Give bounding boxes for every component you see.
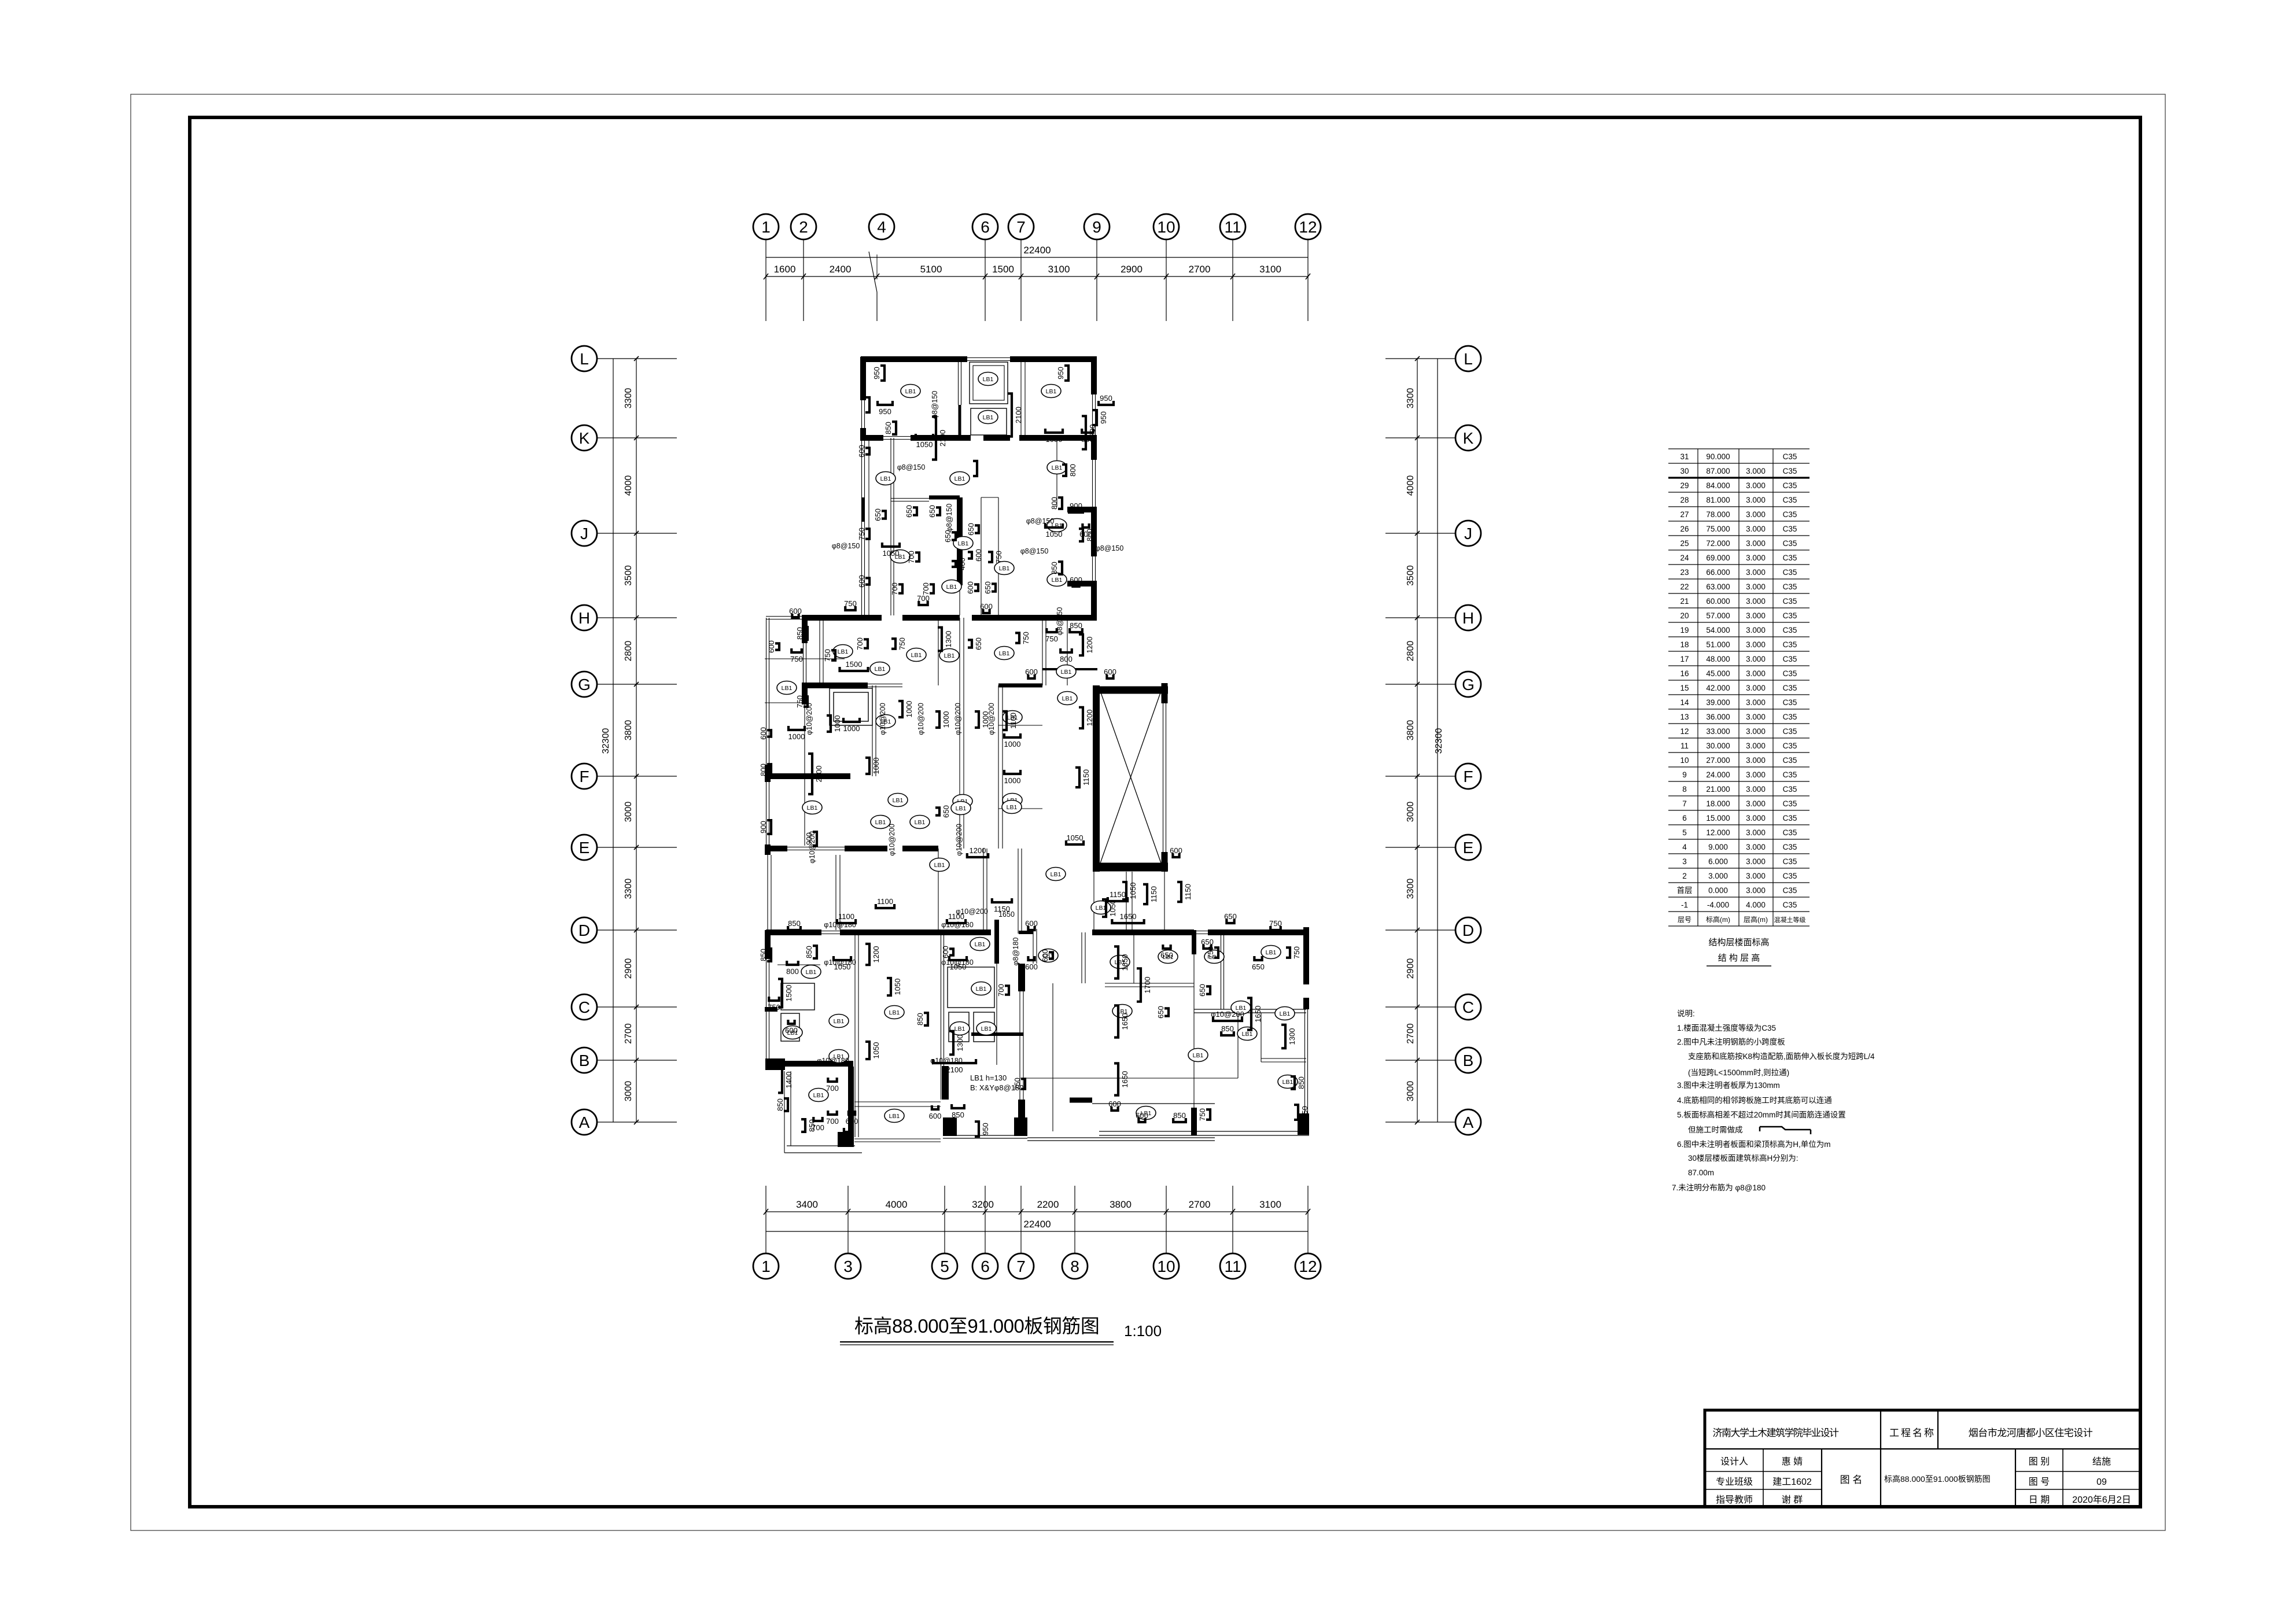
svg-text:1200: 1200 [970, 846, 986, 855]
svg-text:层高(m): 层高(m) [1744, 915, 1768, 924]
svg-text:9.000: 9.000 [1708, 843, 1728, 851]
svg-text:C35: C35 [1783, 597, 1797, 606]
svg-text:850: 850 [1050, 562, 1059, 574]
svg-text:3.000: 3.000 [1746, 843, 1766, 851]
svg-text:D: D [578, 921, 590, 939]
svg-text:800: 800 [1068, 464, 1077, 477]
svg-text:3300: 3300 [624, 388, 633, 409]
svg-text:28: 28 [1680, 496, 1689, 504]
svg-text:3.000: 3.000 [1746, 510, 1766, 519]
svg-text:1050: 1050 [916, 440, 933, 449]
svg-text:φ8@150: φ8@150 [931, 391, 939, 419]
svg-text:600: 600 [1070, 576, 1082, 584]
svg-text:900: 900 [759, 821, 768, 833]
svg-text:4000: 4000 [624, 475, 633, 496]
svg-text:3300: 3300 [624, 879, 633, 899]
svg-text:700: 700 [826, 1084, 839, 1093]
svg-text:C35: C35 [1783, 886, 1797, 895]
svg-text:1000: 1000 [833, 715, 842, 732]
svg-text:1300: 1300 [956, 1035, 964, 1052]
svg-text:LB1: LB1 [889, 1009, 900, 1016]
svg-text:LB1: LB1 [1046, 388, 1057, 395]
svg-text:2020年6月2日: 2020年6月2日 [2072, 1495, 2131, 1505]
svg-text:LB1: LB1 [806, 969, 817, 976]
svg-text:φ10@200: φ10@200 [1211, 1010, 1244, 1019]
svg-text:11: 11 [1224, 218, 1241, 236]
svg-text:12: 12 [1299, 1257, 1317, 1275]
svg-text:0.000: 0.000 [1708, 886, 1728, 895]
svg-text:600: 600 [980, 602, 993, 611]
svg-text:30楼层楼板面建筑标高H分别为:: 30楼层楼板面建筑标高H分别为: [1688, 1153, 1799, 1163]
svg-text:3800: 3800 [1110, 1199, 1132, 1210]
svg-text:750: 750 [1292, 946, 1301, 959]
svg-text:3200: 3200 [972, 1199, 994, 1210]
svg-text:950: 950 [1100, 394, 1112, 403]
svg-text:层号: 层号 [1678, 916, 1691, 924]
svg-text:650: 650 [1252, 962, 1265, 971]
svg-text:1000: 1000 [905, 701, 913, 718]
svg-text:C35: C35 [1783, 539, 1797, 548]
svg-text:6: 6 [981, 1257, 990, 1275]
svg-text:LB1: LB1 [956, 805, 967, 812]
svg-text:结 构 层 高: 结 构 层 高 [1718, 953, 1760, 963]
svg-text:F: F [1463, 768, 1473, 785]
svg-text:C35: C35 [1783, 640, 1797, 649]
svg-text:LB1: LB1 [813, 1092, 824, 1099]
svg-text:850: 850 [776, 1098, 784, 1111]
svg-text:C35: C35 [1783, 770, 1797, 779]
svg-text:9: 9 [1682, 770, 1687, 779]
svg-text:3.000: 3.000 [1746, 872, 1766, 880]
svg-text:850: 850 [805, 946, 813, 958]
svg-text:烟台市龙河唐都小区住宅设计: 烟台市龙河唐都小区住宅设计 [1969, 1427, 2093, 1438]
svg-text:LB1: LB1 [1242, 1031, 1253, 1038]
svg-text:C35: C35 [1783, 669, 1797, 678]
svg-text:54.000: 54.000 [1706, 626, 1730, 635]
svg-text:11: 11 [1680, 742, 1689, 750]
svg-text:5100: 5100 [920, 264, 942, 275]
svg-text:69.000: 69.000 [1706, 554, 1730, 562]
svg-text:LB1: LB1 [944, 652, 955, 659]
svg-text:LB1: LB1 [1282, 1079, 1293, 1086]
svg-text:D: D [1462, 921, 1474, 939]
svg-text:C35: C35 [1783, 582, 1797, 591]
svg-text:φ10@180: φ10@180 [824, 958, 856, 967]
svg-text:1200: 1200 [1085, 637, 1094, 654]
svg-text:27.000: 27.000 [1706, 756, 1730, 765]
svg-text:3: 3 [1682, 857, 1687, 866]
svg-text:51.000: 51.000 [1706, 640, 1730, 649]
svg-text:2100: 2100 [938, 430, 947, 447]
svg-text:31: 31 [1680, 452, 1689, 461]
svg-text:600: 600 [974, 549, 983, 562]
svg-text:C35: C35 [1783, 785, 1797, 794]
svg-text:LB1: LB1 [911, 652, 922, 659]
svg-text:1150: 1150 [1149, 886, 1158, 902]
svg-text:C35: C35 [1783, 554, 1797, 562]
svg-text:1150: 1150 [1082, 769, 1090, 785]
svg-text:1050: 1050 [883, 549, 900, 558]
svg-text:2100: 2100 [1014, 407, 1023, 423]
svg-text:1100: 1100 [877, 897, 893, 906]
svg-text:6: 6 [1682, 814, 1687, 822]
svg-text:但施工时需做成: 但施工时需做成 [1688, 1126, 1743, 1134]
svg-text:LB1: LB1 [838, 648, 849, 655]
svg-text:3.000: 3.000 [1746, 756, 1766, 765]
svg-text:650: 650 [1160, 951, 1173, 960]
svg-text:4: 4 [877, 218, 886, 236]
svg-text:81.000: 81.000 [1706, 496, 1730, 504]
svg-text:950: 950 [1099, 411, 1108, 424]
svg-text:LB1: LB1 [875, 666, 886, 673]
svg-text:φ10@200: φ10@200 [955, 824, 963, 856]
svg-text:800: 800 [786, 967, 799, 976]
svg-text:LB1: LB1 [875, 819, 886, 826]
svg-text:850: 850 [884, 422, 893, 434]
svg-text:C35: C35 [1783, 611, 1797, 620]
svg-text:600: 600 [846, 1117, 858, 1126]
svg-text:32300: 32300 [601, 728, 611, 754]
svg-text:1100: 1100 [1009, 713, 1018, 729]
svg-text:1050: 1050 [893, 979, 902, 995]
svg-text:2: 2 [1682, 872, 1687, 880]
svg-text:12: 12 [1680, 727, 1689, 736]
svg-text:φ10@200: φ10@200 [879, 703, 887, 735]
svg-text:600: 600 [767, 640, 776, 653]
svg-text:950: 950 [872, 367, 881, 379]
svg-text:C35: C35 [1783, 828, 1797, 837]
svg-text:C35: C35 [1783, 713, 1797, 721]
svg-text:LB1: LB1 [1096, 905, 1107, 912]
svg-text:1400: 1400 [784, 1072, 793, 1089]
svg-text:φ8@150: φ8@150 [897, 463, 926, 471]
svg-text:H: H [578, 609, 590, 627]
svg-text:700: 700 [997, 984, 1005, 997]
svg-text:LB1: LB1 [782, 685, 793, 692]
svg-text:1200: 1200 [872, 946, 880, 963]
svg-text:1: 1 [761, 218, 771, 236]
svg-text:(当短跨L<1500mm时,则拉通): (当短跨L<1500mm时,则拉通) [1688, 1068, 1789, 1077]
svg-text:650: 650 [967, 523, 975, 536]
svg-text:600: 600 [759, 727, 768, 740]
svg-text:700: 700 [922, 582, 930, 595]
svg-text:φ10@200: φ10@200 [954, 703, 962, 735]
svg-text:图 别: 图 别 [2029, 1456, 2050, 1467]
svg-text:3.000: 3.000 [1746, 698, 1766, 707]
svg-text:1500: 1500 [784, 985, 793, 1002]
svg-text:C35: C35 [1783, 684, 1797, 692]
svg-text:φ8@150: φ8@150 [1056, 607, 1064, 636]
svg-text:21: 21 [1680, 597, 1689, 606]
svg-text:750: 750 [1013, 1078, 1022, 1090]
svg-text:1200: 1200 [1085, 710, 1094, 726]
svg-text:15: 15 [1680, 684, 1689, 692]
svg-text:850: 850 [952, 1111, 964, 1119]
svg-text:3.000: 3.000 [1746, 496, 1766, 504]
svg-text:LB1: LB1 [958, 540, 969, 547]
svg-text:650: 650 [928, 505, 937, 518]
svg-text:C35: C35 [1783, 698, 1797, 707]
svg-text:φ8@180: φ8@180 [1012, 938, 1020, 966]
svg-text:3.000: 3.000 [1746, 713, 1766, 721]
svg-text:48.000: 48.000 [1706, 655, 1730, 663]
svg-text:K: K [579, 429, 590, 447]
svg-text:A: A [1463, 1113, 1474, 1131]
svg-text:C35: C35 [1783, 452, 1797, 461]
svg-text:750: 750 [994, 551, 1003, 563]
svg-text:3.000: 3.000 [1746, 814, 1766, 822]
svg-text:700: 700 [890, 582, 899, 595]
svg-text:7: 7 [1016, 1257, 1026, 1275]
svg-text:650: 650 [1198, 984, 1207, 997]
svg-text:C35: C35 [1783, 814, 1797, 822]
svg-text:18: 18 [1680, 640, 1689, 649]
svg-text:600: 600 [1025, 962, 1038, 971]
svg-text:63.000: 63.000 [1706, 582, 1730, 591]
svg-text:78.000: 78.000 [1706, 510, 1730, 519]
svg-text:2900: 2900 [1406, 958, 1416, 979]
svg-text:3.000: 3.000 [1746, 467, 1766, 475]
svg-text:850: 850 [916, 1013, 924, 1026]
svg-text:3100: 3100 [1259, 264, 1281, 275]
svg-text:LB1: LB1 [983, 414, 994, 421]
svg-text:20: 20 [1680, 611, 1689, 620]
svg-text:φ10@180: φ10@180 [930, 1057, 963, 1065]
svg-text:3: 3 [843, 1257, 853, 1275]
svg-text:C35: C35 [1783, 727, 1797, 736]
svg-text:φ10@180: φ10@180 [824, 921, 856, 929]
svg-text:建工1602: 建工1602 [1772, 1477, 1812, 1487]
svg-text:650: 650 [942, 805, 950, 818]
svg-text:标高88.000至91.000板钢筋图: 标高88.000至91.000板钢筋图 [1884, 1474, 1991, 1484]
svg-text:87.00m: 87.00m [1688, 1168, 1714, 1177]
svg-text:850: 850 [1297, 1076, 1306, 1089]
svg-text:-1: -1 [1681, 901, 1688, 909]
svg-text:C35: C35 [1783, 510, 1797, 519]
svg-text:1000: 1000 [788, 732, 805, 741]
svg-text:16: 16 [1680, 669, 1689, 678]
svg-text:600: 600 [1170, 846, 1182, 855]
svg-text:说明:: 说明: [1677, 1009, 1695, 1018]
svg-text:2400: 2400 [830, 264, 852, 275]
svg-text:φ10@200: φ10@200 [956, 908, 988, 916]
svg-text:C35: C35 [1783, 525, 1797, 533]
svg-text:3.000: 3.000 [1746, 582, 1766, 591]
svg-text:3000: 3000 [624, 802, 633, 822]
svg-text:12.000: 12.000 [1706, 828, 1730, 837]
svg-text:3.000: 3.000 [1746, 669, 1766, 678]
svg-text:26: 26 [1680, 525, 1689, 533]
svg-text:3.000: 3.000 [1746, 742, 1766, 750]
svg-text:1150: 1150 [1184, 884, 1192, 900]
svg-text:18.000: 18.000 [1706, 799, 1730, 808]
svg-text:C35: C35 [1783, 655, 1797, 663]
svg-text:22400: 22400 [1023, 245, 1051, 256]
svg-text:1050: 1050 [1046, 530, 1063, 538]
svg-text:C35: C35 [1783, 496, 1797, 504]
svg-text:600: 600 [1104, 667, 1116, 676]
svg-text:600: 600 [1079, 530, 1092, 538]
svg-text:LB1: LB1 [1193, 1052, 1204, 1059]
svg-text:23: 23 [1680, 568, 1689, 577]
svg-text:支座筋和底筋按K8构造配筋,面筋伸入板长度为短跨L/4: 支座筋和底筋按K8构造配筋,面筋伸入板长度为短跨L/4 [1688, 1052, 1875, 1061]
svg-text:9: 9 [1092, 218, 1101, 236]
svg-text:10: 10 [1157, 218, 1175, 236]
svg-text:850: 850 [1173, 1111, 1186, 1120]
svg-text:LB1: LB1 [999, 650, 1010, 657]
svg-text:3.000: 3.000 [1746, 886, 1766, 895]
svg-text:图 号: 图 号 [2029, 1477, 2050, 1487]
svg-text:LB1: LB1 [1007, 804, 1018, 811]
svg-text:2900: 2900 [1121, 264, 1143, 275]
svg-text:LB1: LB1 [975, 941, 986, 948]
svg-text:13: 13 [1680, 713, 1689, 721]
svg-text:1650: 1650 [998, 910, 1015, 919]
svg-text:φ10@180: φ10@180 [941, 921, 974, 929]
svg-text:LB1: LB1 [1266, 949, 1277, 956]
svg-text:1500: 1500 [846, 660, 863, 669]
svg-text:650: 650 [1201, 938, 1214, 946]
svg-text:3.000: 3.000 [1746, 554, 1766, 562]
svg-text:谢 群: 谢 群 [1782, 1495, 1803, 1505]
svg-text:1650: 1650 [1121, 1071, 1129, 1088]
svg-text:750: 750 [790, 655, 803, 663]
svg-text:950: 950 [981, 1123, 990, 1135]
svg-text:B: B [579, 1052, 590, 1069]
svg-text:33.000: 33.000 [1706, 727, 1730, 736]
svg-text:3000: 3000 [1406, 1081, 1416, 1102]
svg-text:2100: 2100 [946, 1065, 963, 1074]
svg-text:700: 700 [812, 1123, 824, 1132]
svg-text:600: 600 [1136, 1111, 1148, 1120]
svg-text:1650: 1650 [1254, 1006, 1262, 1023]
svg-text:850: 850 [795, 627, 804, 640]
svg-text:950: 950 [879, 407, 891, 416]
svg-text:750: 750 [1198, 1108, 1207, 1121]
svg-text:LB1: LB1 [1051, 871, 1062, 878]
svg-text:14: 14 [1680, 698, 1689, 707]
svg-text:3.图中未注明者板厚为130mm: 3.图中未注明者板厚为130mm [1677, 1081, 1780, 1090]
svg-text:4: 4 [1682, 843, 1687, 851]
svg-text:设计人: 设计人 [1720, 1456, 1748, 1467]
svg-text:LB1: LB1 [1052, 577, 1063, 584]
svg-text:φ10@200: φ10@200 [917, 703, 925, 735]
svg-text:1050: 1050 [1129, 883, 1137, 899]
svg-text:LB1: LB1 [1061, 669, 1072, 676]
svg-text:K: K [1463, 429, 1474, 447]
svg-text:C: C [578, 998, 590, 1016]
svg-text:30: 30 [1680, 467, 1689, 475]
svg-text:C35: C35 [1783, 799, 1797, 808]
svg-text:1050: 1050 [1046, 435, 1063, 444]
svg-text:75.000: 75.000 [1706, 525, 1730, 533]
svg-text:7.未注明分布筋为 φ8@180: 7.未注明分布筋为 φ8@180 [1672, 1183, 1766, 1192]
svg-text:90.000: 90.000 [1706, 452, 1730, 461]
svg-text:650: 650 [874, 508, 882, 521]
svg-text:LB1: LB1 [915, 819, 926, 826]
svg-text:1050: 1050 [1067, 833, 1083, 842]
svg-text:3.000: 3.000 [1746, 655, 1766, 663]
svg-text:标高(m): 标高(m) [1706, 915, 1730, 924]
svg-text:3.000: 3.000 [1746, 611, 1766, 620]
svg-text:600: 600 [929, 1112, 942, 1120]
svg-text:72.000: 72.000 [1706, 539, 1730, 548]
svg-text:3500: 3500 [1406, 565, 1416, 586]
svg-text:日 期: 日 期 [2029, 1495, 2050, 1505]
svg-text:3.000: 3.000 [1746, 539, 1766, 548]
svg-text:LB1: LB1 [954, 1026, 965, 1032]
svg-text:800: 800 [1081, 435, 1094, 444]
svg-text:600: 600 [1041, 949, 1049, 962]
svg-text:39.000: 39.000 [1706, 698, 1730, 707]
svg-text:济南大学土木建筑学院毕业设计: 济南大学土木建筑学院毕业设计 [1713, 1427, 1839, 1438]
svg-text:E: E [1463, 839, 1474, 857]
svg-text:3.000: 3.000 [1746, 568, 1766, 577]
svg-text:C35: C35 [1783, 467, 1797, 475]
svg-text:φ10@200: φ10@200 [987, 703, 996, 735]
svg-text:6.000: 6.000 [1708, 857, 1728, 866]
svg-text:4000: 4000 [886, 1199, 908, 1210]
svg-text:LB1 h=130: LB1 h=130 [970, 1074, 1007, 1082]
svg-text:φ8@150: φ8@150 [1026, 517, 1055, 525]
svg-text:1700: 1700 [1143, 977, 1152, 994]
svg-text:3.000: 3.000 [1746, 640, 1766, 649]
svg-text:1050: 1050 [872, 1042, 880, 1059]
svg-text:600: 600 [857, 575, 866, 588]
svg-text:3300: 3300 [1406, 879, 1416, 899]
svg-text:H: H [1462, 609, 1474, 627]
svg-text:2000: 2000 [815, 766, 823, 783]
svg-text:LB1: LB1 [1062, 695, 1073, 702]
svg-text:1: 1 [761, 1257, 771, 1275]
svg-text:750: 750 [823, 649, 832, 662]
svg-text:5: 5 [1682, 828, 1687, 837]
svg-text:8: 8 [1070, 1257, 1079, 1275]
svg-text:10: 10 [1157, 1257, 1175, 1275]
svg-text:27: 27 [1680, 510, 1689, 519]
svg-text:φ8@150: φ8@150 [945, 504, 953, 532]
svg-text:φ10@180: φ10@180 [941, 958, 974, 967]
svg-text:700: 700 [917, 594, 930, 603]
svg-text:3.000: 3.000 [1746, 727, 1766, 736]
svg-text:E: E [579, 839, 590, 857]
svg-text:24.000: 24.000 [1706, 770, 1730, 779]
svg-text:3.000: 3.000 [1746, 481, 1766, 490]
svg-text:750: 750 [844, 599, 857, 608]
svg-text:5.板面标高相差不超过20mm时其间面筋连通设置: 5.板面标高相差不超过20mm时其间面筋连通设置 [1677, 1110, 1846, 1119]
svg-text:L: L [1464, 350, 1473, 368]
svg-text:2800: 2800 [1406, 641, 1416, 662]
svg-text:3100: 3100 [1259, 1199, 1281, 1210]
svg-text:LB1: LB1 [880, 475, 891, 482]
svg-text:45.000: 45.000 [1706, 669, 1730, 678]
svg-text:3800: 3800 [1406, 720, 1416, 741]
svg-text:650: 650 [905, 505, 913, 518]
svg-text:L: L [580, 350, 589, 368]
svg-text:C35: C35 [1783, 872, 1797, 880]
svg-text:57.000: 57.000 [1706, 611, 1730, 620]
svg-text:3.000: 3.000 [1746, 828, 1766, 837]
svg-text:1500: 1500 [992, 264, 1014, 275]
svg-text:600: 600 [966, 581, 975, 594]
svg-text:惠 婧: 惠 婧 [1782, 1456, 1803, 1467]
svg-text:3500: 3500 [624, 565, 633, 586]
svg-text:84.000: 84.000 [1706, 481, 1730, 490]
svg-text:750: 750 [1022, 632, 1030, 644]
svg-text:650: 650 [974, 637, 983, 650]
svg-text:3.000: 3.000 [1746, 785, 1766, 794]
svg-text:700: 700 [907, 551, 916, 563]
